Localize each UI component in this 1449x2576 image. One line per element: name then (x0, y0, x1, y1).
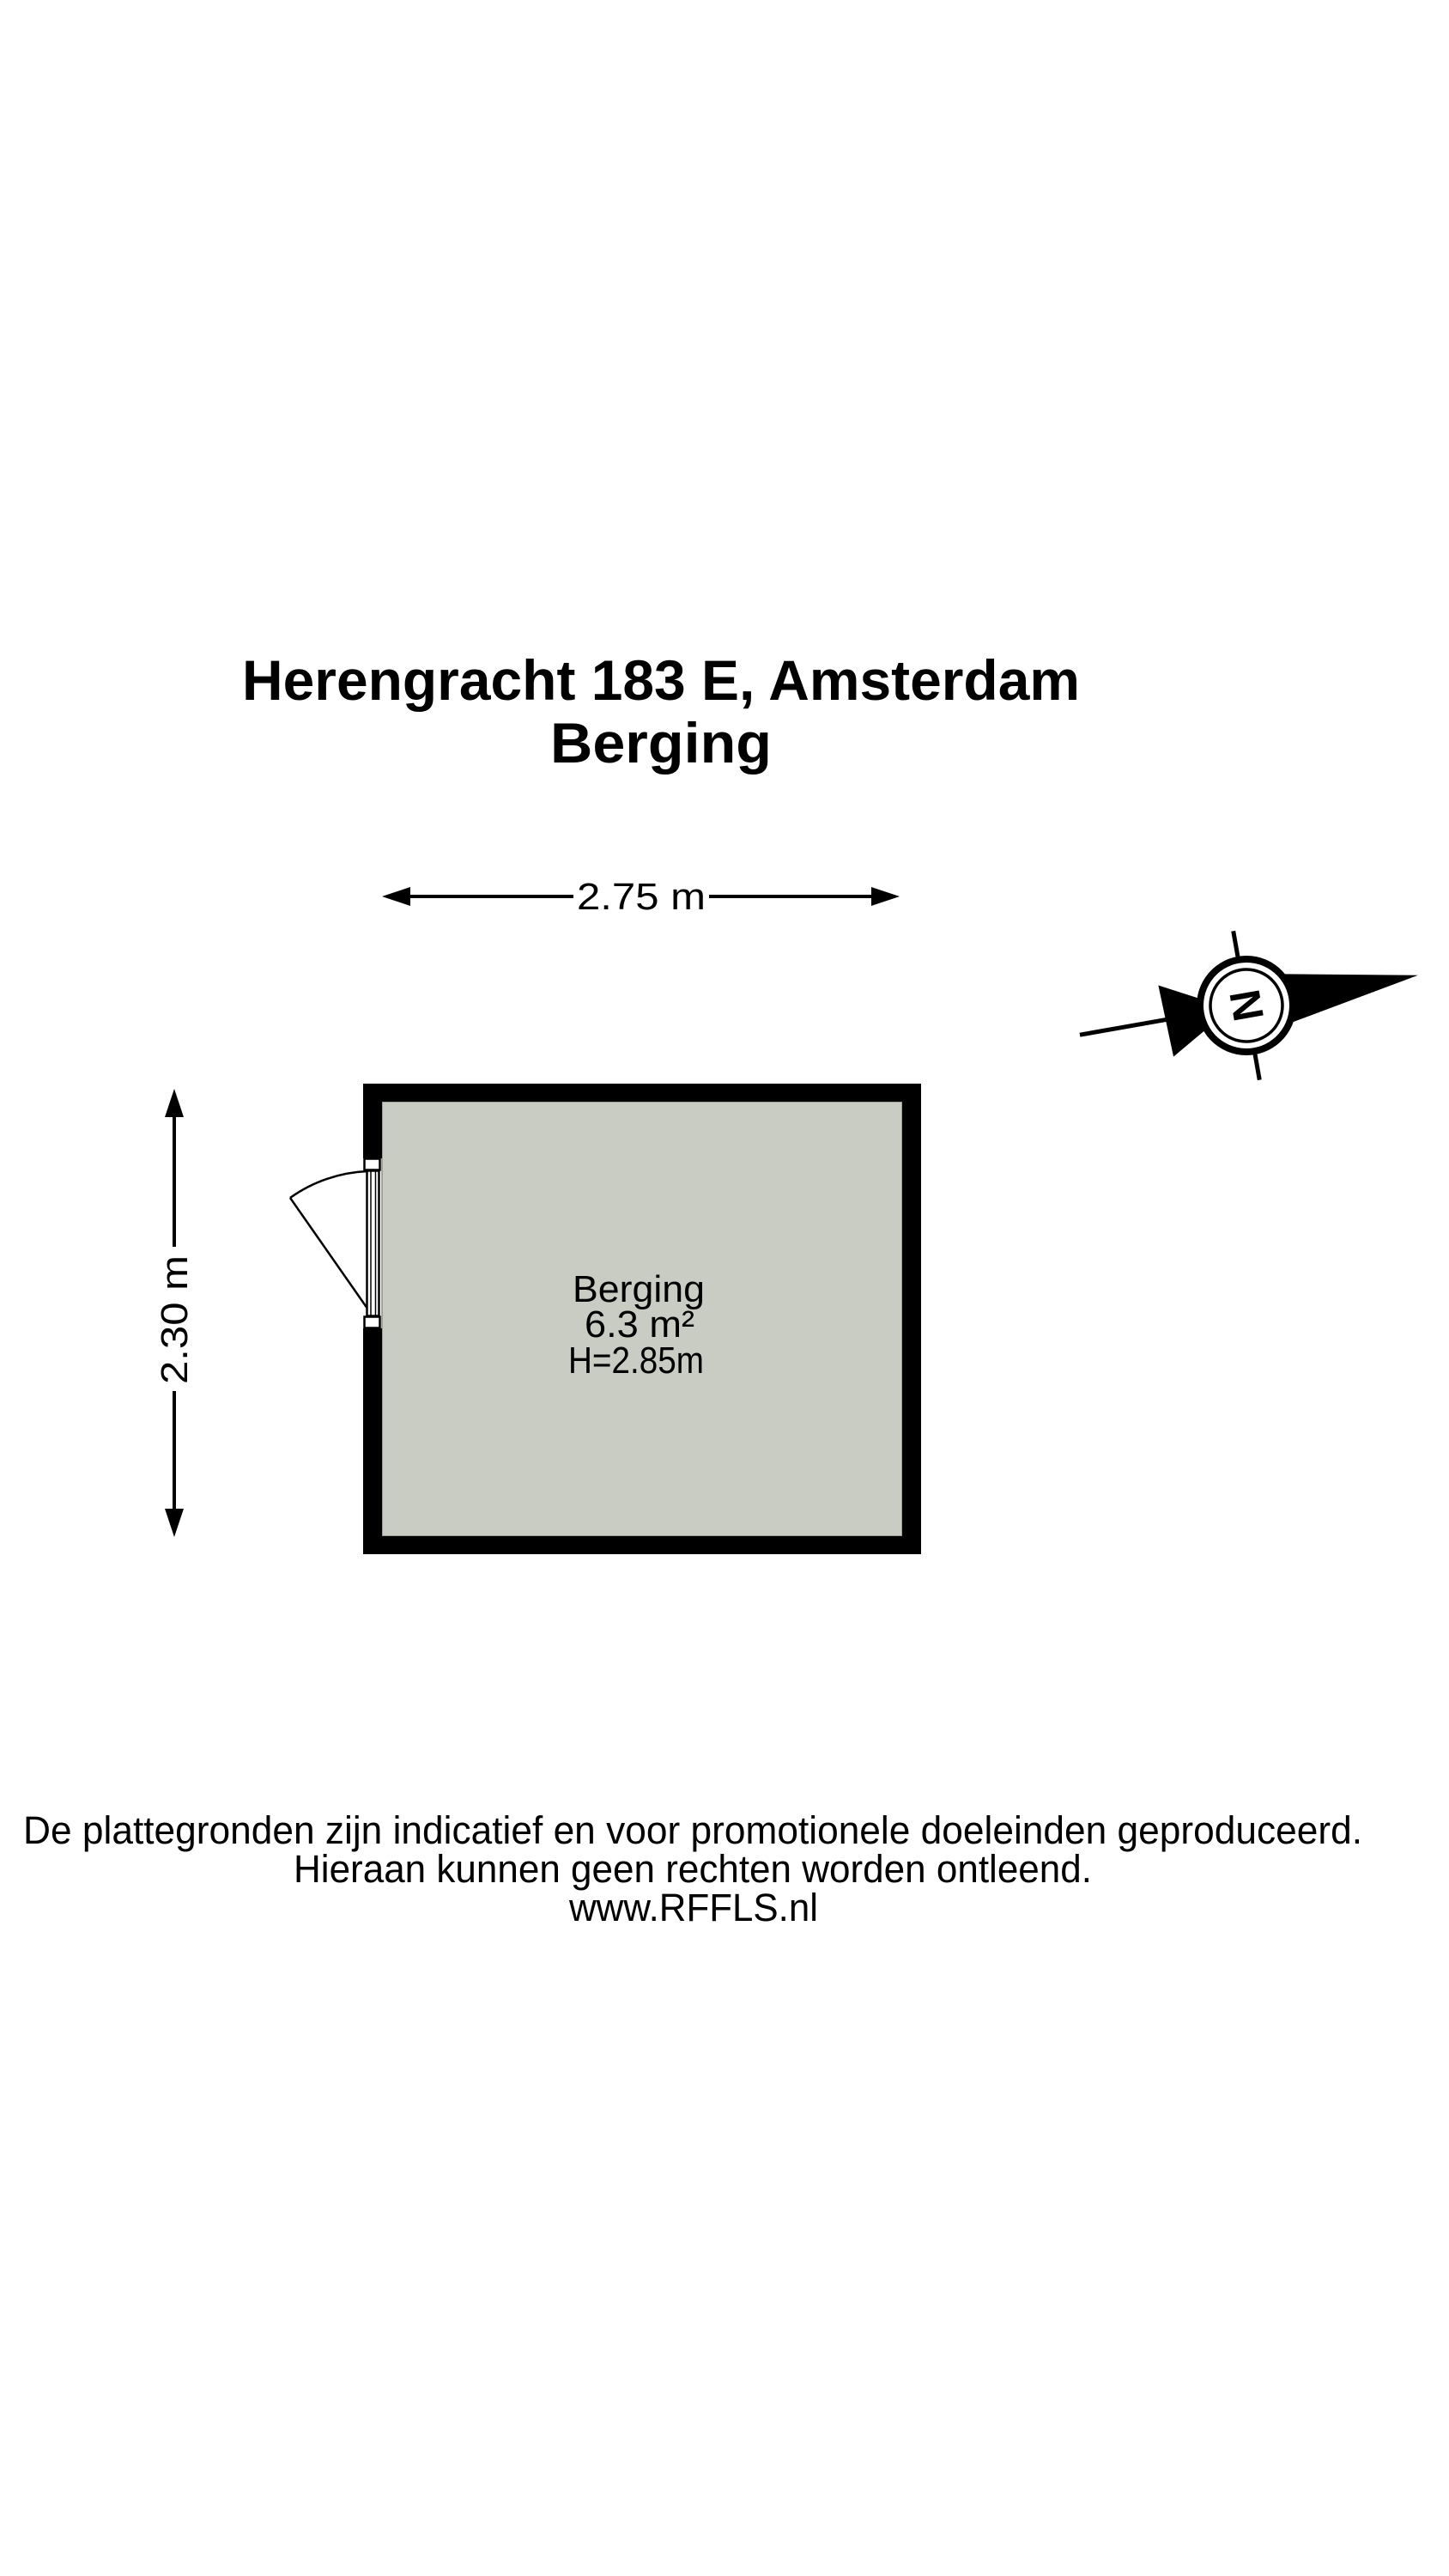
floorplan-canvas: Herengracht 183 E, Amsterdam Berging 2.7… (0, 0, 1449, 2576)
door-leaf-open-line (290, 1198, 372, 1315)
compass-north-arrow: N (1067, 901, 1431, 1109)
dimension-height-label: 2.30 m (154, 1255, 196, 1384)
wall-right (902, 1084, 921, 1554)
room-label: Berging 6.3 m² H=2.85m (568, 1268, 705, 1382)
footer-line-1: De plattegronden zijn indicatief en voor… (23, 1808, 1362, 1852)
room-berging: Berging 6.3 m² H=2.85m (290, 1084, 921, 1554)
footer-disclaimer: De plattegronden zijn indicatief en voor… (23, 1808, 1362, 1929)
footer-line-2: Hieraan kunnen geen rechten worden ontle… (294, 1847, 1092, 1891)
footer-website: www.RFFLS.nl (568, 1886, 818, 1929)
dimension-width-arrowhead-left (382, 887, 410, 906)
dimension-width-arrowhead-right (871, 887, 900, 906)
dimension-height-arrowhead-bottom (165, 1509, 184, 1537)
door-leaf-closed (367, 1171, 379, 1316)
dimension-height: 2.30 m (154, 1089, 196, 1537)
title-room: Berging (550, 711, 772, 775)
door-swing-arc (290, 1171, 368, 1198)
wall-left-lower (363, 1328, 382, 1554)
door-jamb-top (365, 1159, 380, 1170)
title-address: Herengracht 183 E, Amsterdam (242, 648, 1080, 712)
door (290, 1159, 380, 1328)
door-jamb-bottom (365, 1317, 380, 1328)
wall-bottom (363, 1536, 921, 1554)
dimension-width: 2.75 m (382, 876, 900, 918)
wall-left-upper (363, 1084, 382, 1158)
room-height-label: H=2.85m (568, 1340, 704, 1382)
wall-top (363, 1084, 921, 1102)
dimension-width-label: 2.75 m (577, 876, 706, 918)
dimension-height-arrowhead-top (165, 1089, 184, 1117)
page-title: Herengracht 183 E, Amsterdam Berging (242, 648, 1080, 775)
